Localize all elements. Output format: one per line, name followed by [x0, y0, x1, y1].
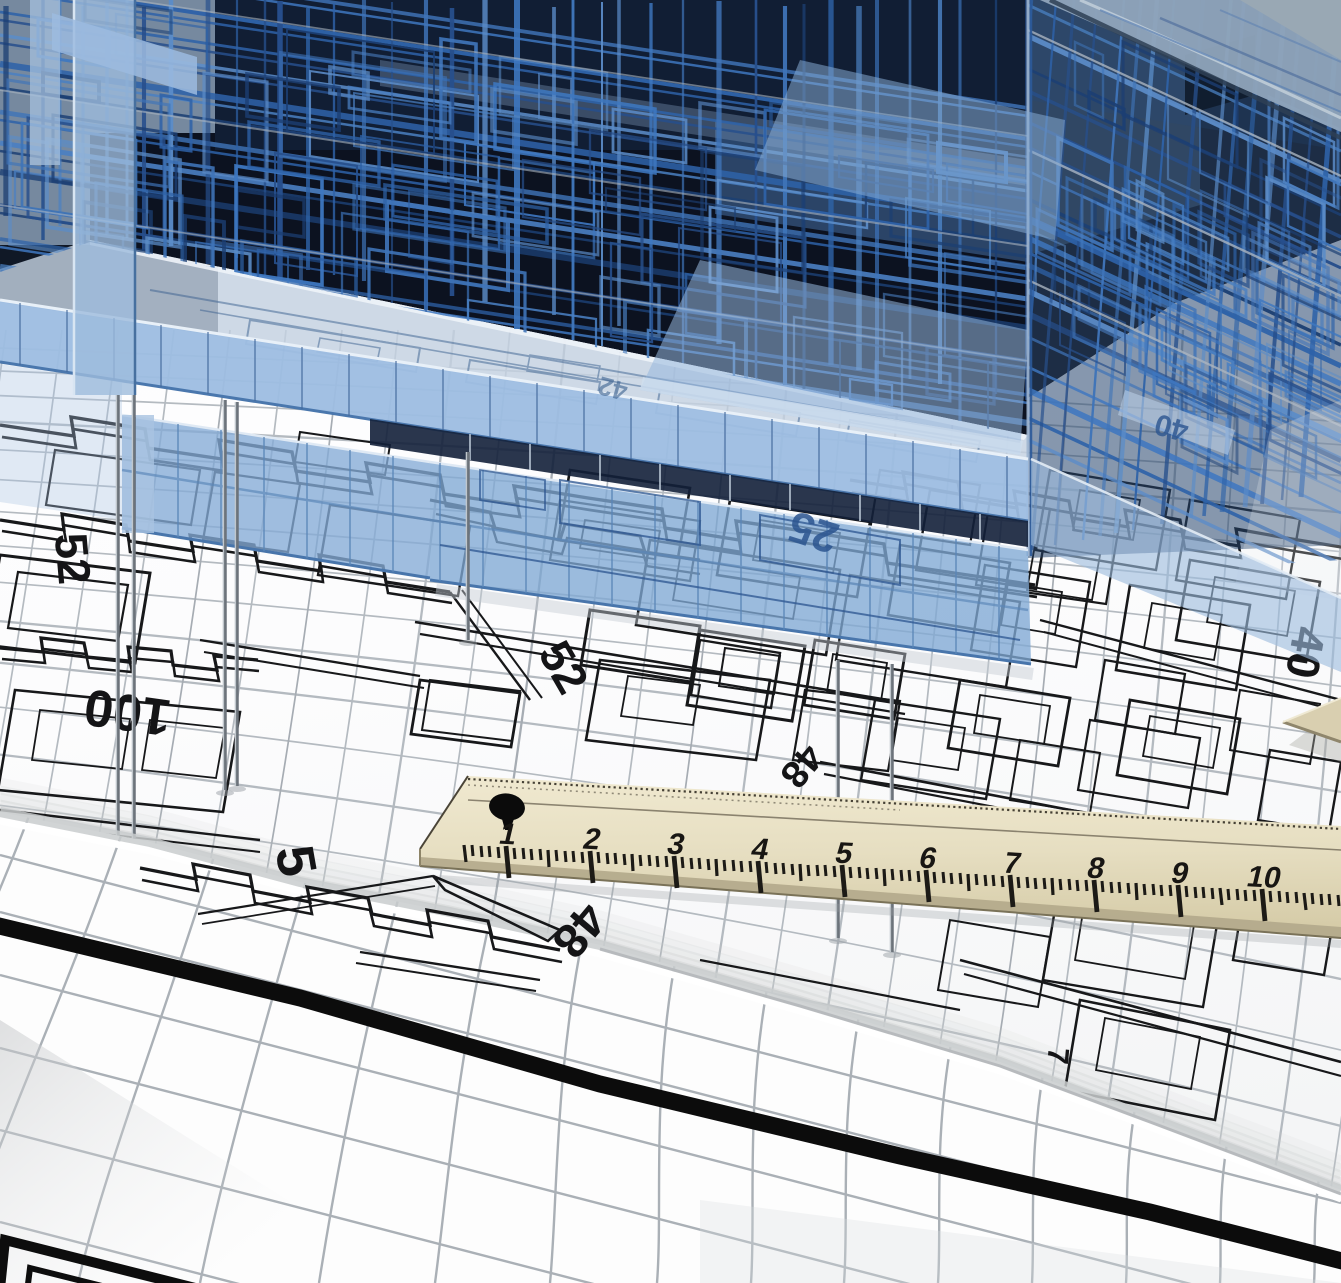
svg-text:7: 7 — [1040, 1046, 1074, 1066]
svg-text:52: 52 — [45, 531, 101, 587]
svg-text:100: 100 — [81, 677, 175, 747]
